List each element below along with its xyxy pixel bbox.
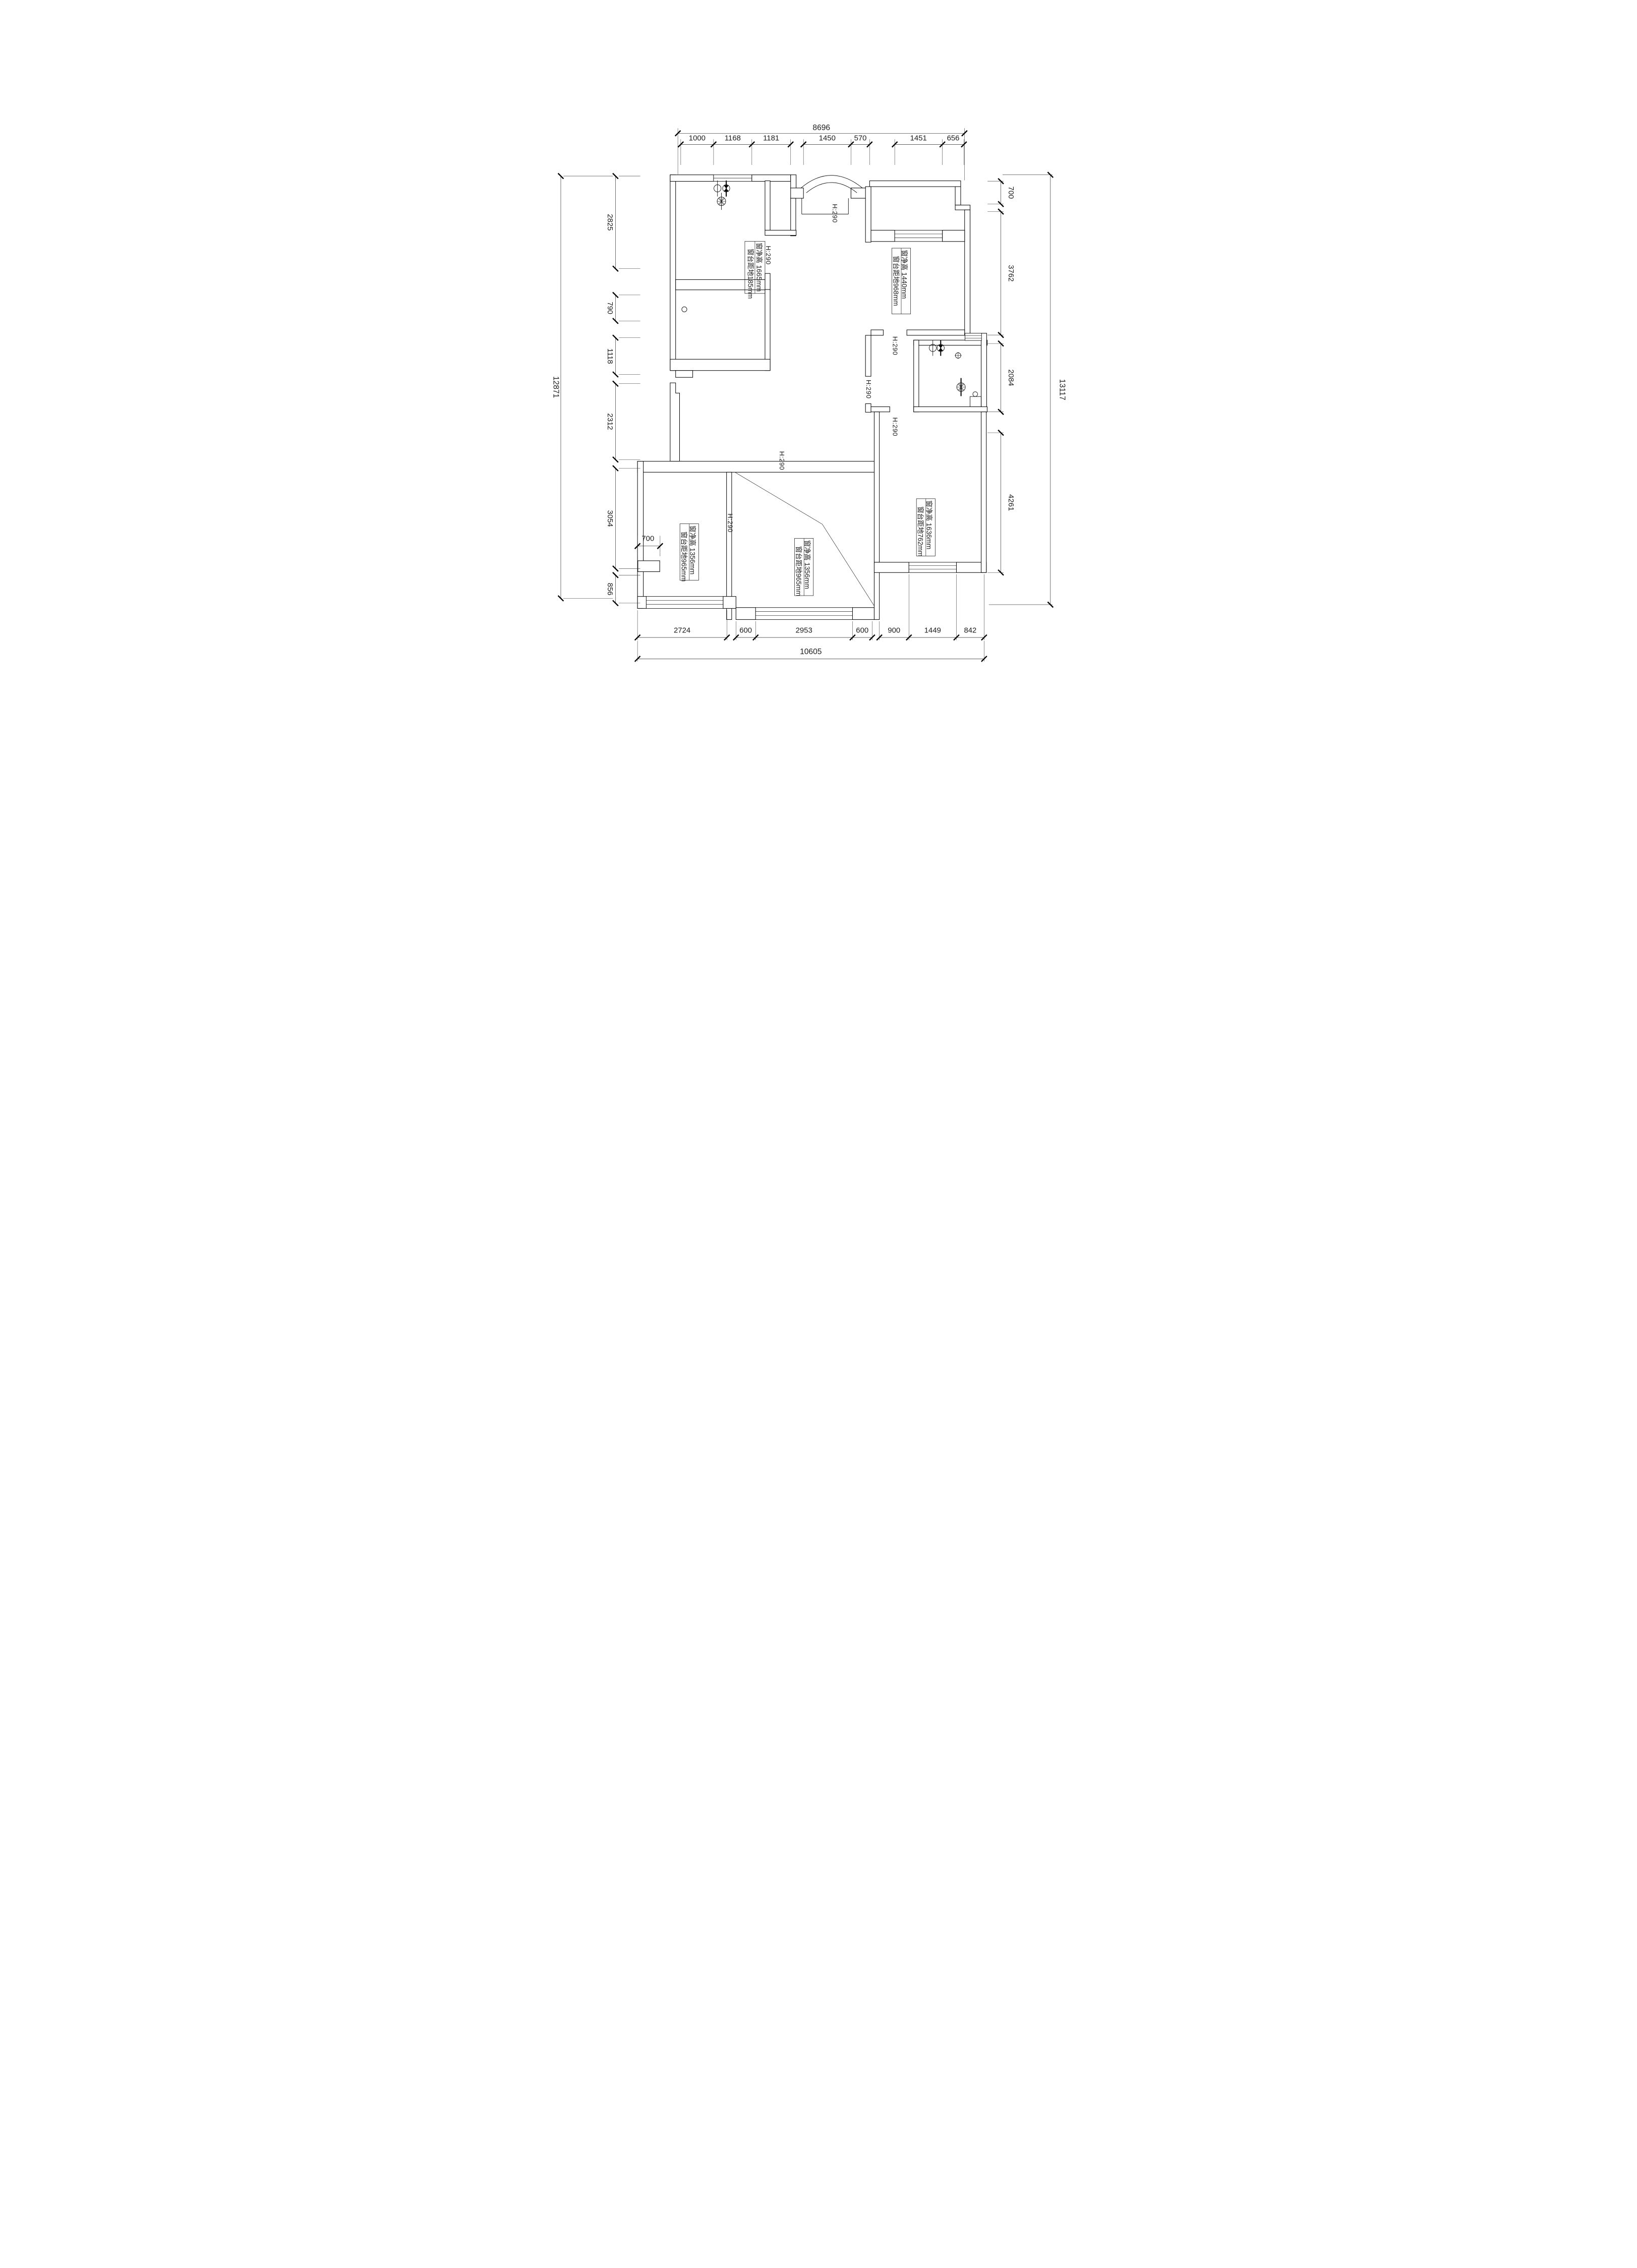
floor-plan-sheet: 8696 1000 1168 1181 1450 570 1451 656 bbox=[541, 0, 1096, 769]
window-clear-height: 窗净高 1356mm bbox=[689, 526, 697, 574]
dim-left-seg: 2312 bbox=[606, 413, 614, 430]
beam-label: H:290 bbox=[727, 513, 734, 533]
dim-top-seg: 1168 bbox=[725, 135, 741, 143]
annotation-bottom-left-room: 窗净高 1356mm 窗台距地965mm bbox=[680, 524, 698, 582]
window-clear-height: 窗净高 1636mm bbox=[925, 500, 933, 549]
wall-pier bbox=[670, 383, 680, 461]
beam-label: H:290 bbox=[765, 246, 772, 265]
floor-plan-drawing: 8696 1000 1168 1181 1450 570 1451 656 bbox=[541, 0, 1096, 769]
dim-top-seg: 1000 bbox=[689, 135, 706, 143]
beam-label: H:290 bbox=[891, 418, 899, 437]
dim-top-seg: 1451 bbox=[910, 135, 927, 143]
wall-niche bbox=[638, 561, 660, 572]
dim-bottom-overall: 10605 bbox=[800, 648, 822, 656]
annotation-bottom-middle-room: 窗净高 1356mm 窗台距地965mm bbox=[795, 538, 813, 596]
window-bottom-left bbox=[646, 597, 723, 609]
beam-label: H:290 bbox=[831, 204, 839, 223]
dim-right-seg: 2084 bbox=[1007, 369, 1015, 386]
vent-window bbox=[965, 333, 981, 340]
dim-right-overall: 13117 bbox=[1058, 379, 1066, 400]
dim-bottom-seg: 600 bbox=[739, 627, 752, 635]
beam-label: H:290 bbox=[865, 380, 872, 399]
dim-bottom-seg: 1449 bbox=[924, 627, 941, 635]
beam-label: H:290 bbox=[891, 336, 899, 356]
dim-bottom-seg: 2953 bbox=[796, 627, 812, 635]
dim-left-seg: 3054 bbox=[606, 510, 614, 527]
dim-top-seg: 656 bbox=[947, 135, 960, 143]
dim-bottom-seg: 2724 bbox=[674, 627, 690, 635]
dim-top-seg: 1181 bbox=[763, 135, 779, 143]
dim-bottom-seg: 600 bbox=[856, 627, 868, 635]
dim-right-seg: 4261 bbox=[1007, 494, 1015, 511]
dim-left-seg: 1118 bbox=[606, 348, 614, 364]
dim-left-seg: 2825 bbox=[606, 214, 614, 230]
dim-right-seg: 3762 bbox=[1007, 265, 1015, 281]
dim-left-seg: 856 bbox=[606, 583, 614, 596]
window-bottom-right bbox=[909, 562, 956, 572]
dim-right-seg: 700 bbox=[1007, 186, 1015, 199]
window-sill-height: 窗台距地762mm bbox=[917, 506, 925, 556]
window-sill-height: 窗台距地965mm bbox=[795, 546, 803, 596]
window-clear-height: 窗净高 1440mm bbox=[901, 250, 909, 299]
dim-top-seg: 1450 bbox=[819, 135, 836, 143]
dim-bottom-seg: 842 bbox=[964, 627, 976, 635]
dim-bottom-seg: 900 bbox=[888, 627, 900, 635]
window-sill-height: 窗台距地965mm bbox=[680, 532, 688, 581]
exhaust-fan-icon bbox=[957, 383, 965, 391]
beam-label: H:290 bbox=[778, 451, 786, 471]
annotation-bottom-right-room: 窗净高 1636mm 窗台距地762mm bbox=[916, 499, 935, 557]
dim-left-overall: 12871 bbox=[551, 376, 560, 398]
dim-left-seg: 790 bbox=[606, 302, 614, 314]
window-bottom-middle bbox=[755, 608, 852, 620]
dim-niche-width: 700 bbox=[641, 535, 654, 543]
window-sill-height: 窗台距地968mm bbox=[892, 256, 900, 306]
exhaust-fan-icon bbox=[717, 197, 726, 206]
dim-top-overall: 8696 bbox=[812, 124, 830, 132]
annotation-top-left-room: 窗净高 1665mm 窗台距地185mm bbox=[745, 241, 765, 299]
dim-top-seg: 570 bbox=[854, 135, 867, 143]
window-sill-height: 窗台距地185mm bbox=[747, 249, 755, 299]
window-clear-height: 窗净高 1665mm bbox=[755, 243, 764, 292]
window-top-right bbox=[895, 230, 943, 241]
window-clear-height: 窗净高 1356mm bbox=[803, 540, 811, 589]
